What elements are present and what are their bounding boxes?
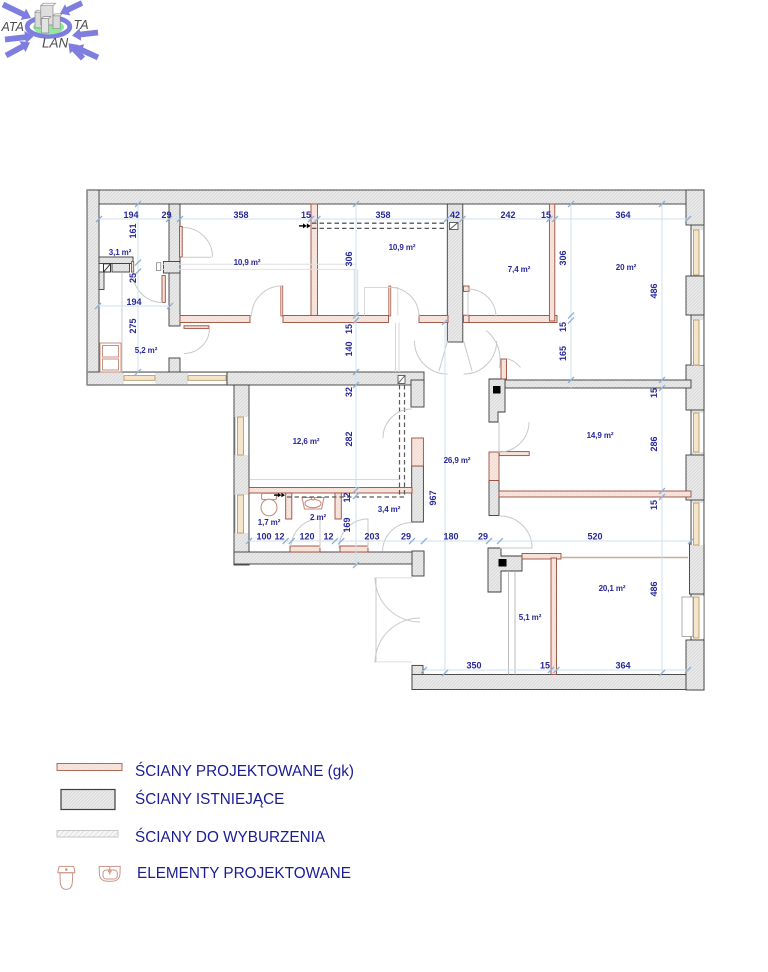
- svg-text:165: 165: [558, 346, 568, 361]
- svg-text:161: 161: [128, 223, 138, 238]
- svg-text:286: 286: [649, 436, 659, 451]
- svg-text:120: 120: [299, 532, 314, 542]
- svg-text:194: 194: [126, 297, 141, 307]
- svg-text:10,9 m²: 10,9 m²: [389, 243, 416, 252]
- svg-text:15: 15: [344, 324, 354, 334]
- svg-text:15: 15: [540, 661, 550, 671]
- svg-text:26,9 m²: 26,9 m²: [444, 456, 471, 465]
- svg-text:20,1 m²: 20,1 m²: [599, 584, 626, 593]
- svg-text:100: 100: [256, 532, 271, 542]
- svg-text:42: 42: [450, 210, 460, 220]
- svg-text:29: 29: [161, 210, 171, 220]
- svg-text:520: 520: [587, 532, 602, 542]
- svg-text:12,6 m²: 12,6 m²: [293, 437, 320, 446]
- svg-text:3,4 m²: 3,4 m²: [378, 505, 401, 514]
- svg-text:12: 12: [274, 532, 284, 542]
- svg-text:20 m²: 20 m²: [616, 263, 637, 272]
- svg-text:194: 194: [123, 210, 138, 220]
- svg-text:275: 275: [128, 318, 138, 333]
- svg-text:169: 169: [342, 517, 352, 532]
- svg-text:350: 350: [466, 661, 481, 671]
- svg-text:486: 486: [649, 283, 659, 298]
- svg-text:486: 486: [649, 581, 659, 596]
- svg-text:180: 180: [443, 532, 458, 542]
- svg-text:203: 203: [364, 532, 379, 542]
- svg-text:306: 306: [344, 251, 354, 266]
- svg-text:15: 15: [558, 322, 568, 332]
- svg-text:358: 358: [375, 210, 390, 220]
- svg-text:ŚCIANY ISTNIEJĄCE: ŚCIANY ISTNIEJĄCE: [135, 790, 284, 808]
- svg-text:7,4 m²: 7,4 m²: [508, 265, 531, 274]
- svg-text:358: 358: [233, 210, 248, 220]
- svg-text:LAN: LAN: [42, 36, 69, 51]
- svg-text:242: 242: [500, 210, 515, 220]
- svg-text:1,7 m²: 1,7 m²: [258, 518, 281, 527]
- svg-text:3,1 m²: 3,1 m²: [109, 248, 132, 257]
- svg-text:364: 364: [615, 210, 630, 220]
- svg-text:12: 12: [323, 532, 333, 542]
- svg-text:282: 282: [344, 431, 354, 446]
- svg-text:15: 15: [301, 210, 311, 220]
- svg-text:ŚCIANY PROJEKTOWANE (gk): ŚCIANY PROJEKTOWANE (gk): [135, 762, 354, 780]
- svg-text:TA: TA: [74, 18, 89, 32]
- svg-text:32: 32: [344, 387, 354, 397]
- svg-text:5,2 m²: 5,2 m²: [135, 346, 158, 355]
- svg-text:5,1 m²: 5,1 m²: [519, 613, 542, 622]
- svg-text:15: 15: [649, 388, 659, 398]
- svg-text:25: 25: [128, 273, 138, 283]
- svg-text:15: 15: [541, 210, 551, 220]
- svg-text:2 m²: 2 m²: [310, 513, 326, 522]
- svg-text:10,9 m²: 10,9 m²: [234, 258, 261, 267]
- svg-text:ŚCIANY DO WYBURZENIA: ŚCIANY DO WYBURZENIA: [135, 828, 326, 846]
- svg-text:29: 29: [478, 532, 488, 542]
- svg-text:140: 140: [344, 341, 354, 356]
- svg-text:967: 967: [428, 490, 438, 505]
- svg-text:364: 364: [615, 661, 630, 671]
- svg-text:14,9 m²: 14,9 m²: [587, 431, 614, 440]
- svg-text:29: 29: [401, 532, 411, 542]
- svg-text:ATA: ATA: [1, 20, 24, 34]
- svg-text:12: 12: [342, 492, 352, 502]
- svg-text:15: 15: [649, 500, 659, 510]
- svg-text:ELEMENTY PROJEKTOWANE: ELEMENTY PROJEKTOWANE: [137, 865, 351, 882]
- svg-text:306: 306: [558, 250, 568, 265]
